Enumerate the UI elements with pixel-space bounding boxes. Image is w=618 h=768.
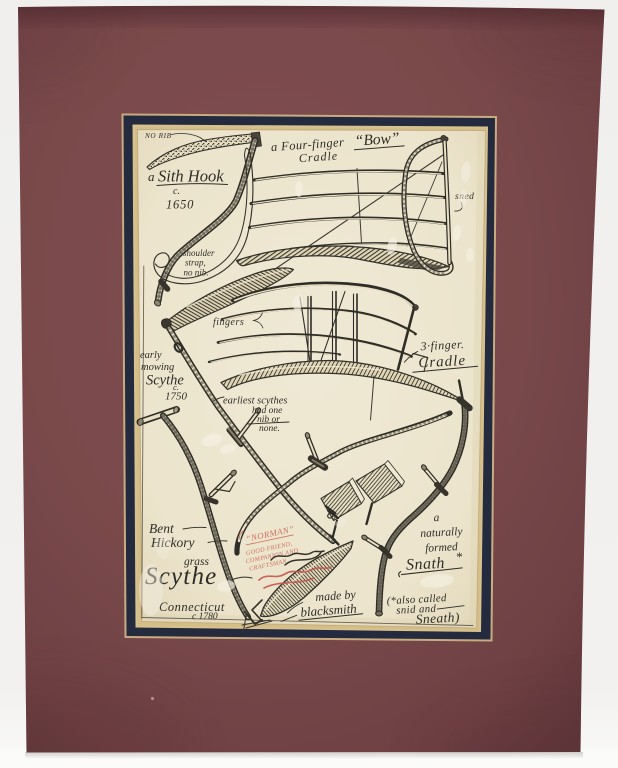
svg-text:NO RIB: NO RIB — [144, 132, 172, 140]
svg-text:1750: 1750 — [165, 391, 188, 403]
svg-text:no nib.: no nib. — [184, 268, 209, 278]
svg-text:Sneath): Sneath) — [415, 609, 460, 626]
svg-text:*: * — [455, 549, 463, 564]
svg-text:3·finger.: 3·finger. — [419, 337, 465, 353]
svg-text:Cradle: Cradle — [298, 148, 338, 165]
svg-text:naturally: naturally — [420, 526, 464, 540]
svg-text:c 1780: c 1780 — [192, 612, 218, 622]
svg-text:a: a — [148, 169, 155, 184]
svg-text:strap,: strap, — [185, 258, 206, 268]
svg-text:Cradle: Cradle — [418, 353, 466, 371]
svg-text:earliest scythes: earliest scythes — [223, 396, 287, 407]
svg-text:a: a — [433, 512, 440, 524]
svg-text:early: early — [140, 350, 162, 361]
svg-text:Sith Hook: Sith Hook — [158, 167, 224, 186]
svg-text:Snath: Snath — [406, 555, 446, 574]
svg-text:mowing: mowing — [141, 362, 174, 373]
svg-text:none.: none. — [259, 424, 280, 434]
svg-text:formed: formed — [425, 541, 458, 555]
svg-text:c.: c. — [173, 186, 180, 197]
svg-text:1650: 1650 — [166, 198, 194, 212]
svg-text:shoulder: shoulder — [183, 248, 215, 258]
